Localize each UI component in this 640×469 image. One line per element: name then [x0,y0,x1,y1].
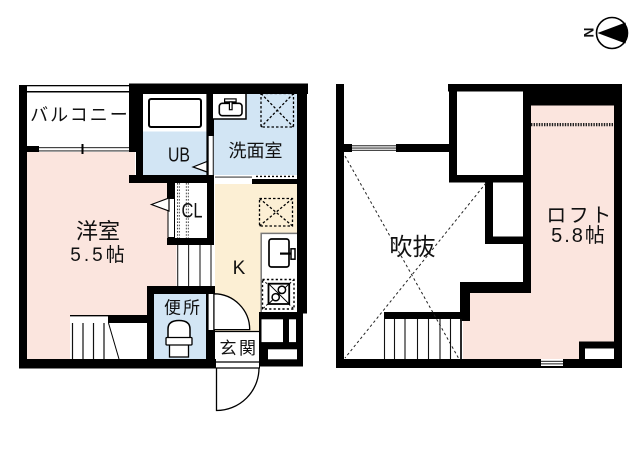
svg-text:吹抜: 吹抜 [390,234,436,261]
svg-text:N: N [581,27,597,37]
svg-text:ロフト: ロフト [546,205,614,227]
svg-text:バルコニー: バルコニー [30,105,130,125]
svg-text:UB: UB [168,145,190,167]
svg-text:CL: CL [182,200,203,223]
svg-text:洗面室: 洗面室 [229,141,283,161]
svg-text:便所: 便所 [164,299,202,318]
svg-text:玄関: 玄関 [220,339,259,358]
svg-text:5.8帖: 5.8帖 [551,224,607,247]
svg-text:K: K [233,258,246,279]
svg-text:洋室: 洋室 [76,219,120,244]
svg-text:5.5帖: 5.5帖 [70,244,127,266]
